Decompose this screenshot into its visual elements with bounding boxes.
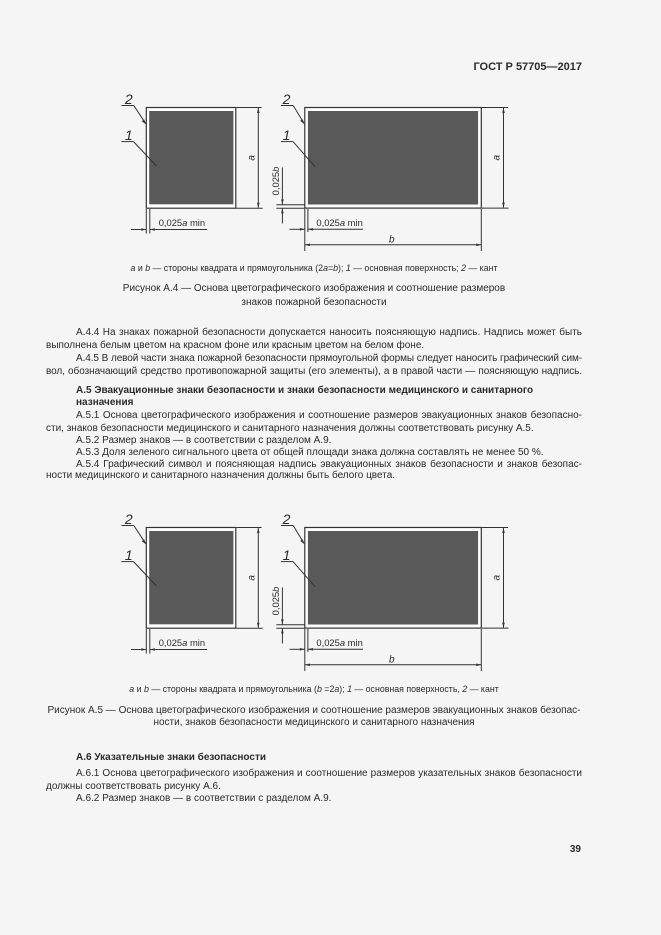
svg-text:0,025b: 0,025b [270, 587, 281, 616]
svg-text:0,025a min: 0,025a min [159, 217, 205, 228]
svg-text:1: 1 [283, 547, 291, 563]
svg-text:2: 2 [124, 91, 133, 107]
svg-text:2: 2 [282, 91, 291, 107]
svg-text:2: 2 [282, 511, 291, 527]
svg-text:0,025b: 0,025b [270, 167, 281, 196]
svg-text:1: 1 [283, 127, 291, 143]
svg-text:a: a [492, 574, 503, 580]
svg-text:1: 1 [125, 127, 133, 143]
svg-text:b: b [389, 235, 395, 246]
svg-text:0,025a min: 0,025a min [316, 637, 362, 648]
svg-text:0,025a min: 0,025a min [159, 637, 205, 648]
svg-text:1: 1 [125, 547, 133, 563]
svg-text:a: a [492, 154, 503, 160]
svg-text:0,025a min: 0,025a min [316, 217, 362, 228]
svg-text:b: b [389, 655, 395, 666]
svg-text:a: a [247, 575, 258, 581]
svg-text:2: 2 [124, 511, 133, 527]
svg-text:a: a [247, 155, 258, 161]
